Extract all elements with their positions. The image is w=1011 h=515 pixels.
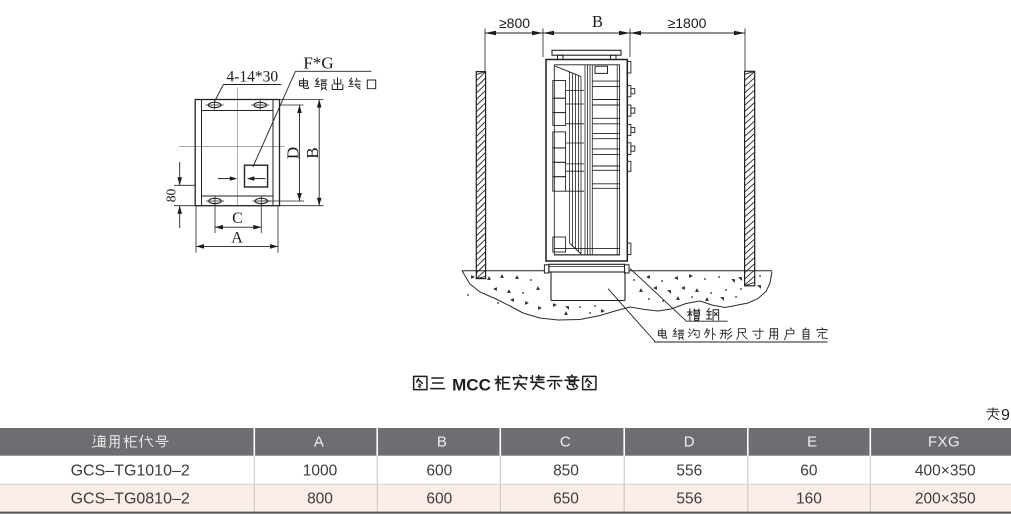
svg-text:B: B [592, 12, 603, 31]
svg-text:E: E [807, 434, 818, 451]
svg-text:60: 60 [800, 463, 818, 480]
svg-text:850: 850 [553, 463, 579, 480]
svg-text:600: 600 [426, 463, 452, 480]
svg-text:650: 650 [553, 491, 579, 508]
svg-text:556: 556 [676, 463, 702, 480]
svg-text:80: 80 [164, 189, 179, 203]
svg-text:1000: 1000 [303, 463, 338, 480]
svg-text:GCS–TG1010–2: GCS–TG1010–2 [71, 463, 190, 480]
svg-text:4-14*30: 4-14*30 [226, 69, 278, 86]
svg-text:FXG: FXG [928, 434, 960, 451]
svg-text:800: 800 [307, 491, 333, 508]
svg-text:C: C [560, 434, 571, 451]
svg-text:556: 556 [676, 491, 702, 508]
svg-text:160: 160 [796, 491, 822, 508]
svg-text:D: D [684, 434, 695, 451]
svg-text:9: 9 [1001, 407, 1010, 424]
svg-text:≥1800: ≥1800 [668, 15, 707, 31]
svg-text:C: C [232, 210, 243, 227]
svg-text:A: A [314, 434, 325, 451]
svg-text:≥800: ≥800 [499, 15, 530, 31]
svg-text:D: D [283, 147, 302, 159]
svg-text:F*G: F*G [303, 54, 333, 73]
svg-text:600: 600 [426, 491, 452, 508]
svg-text:A: A [231, 229, 243, 246]
svg-text:B: B [437, 434, 448, 451]
svg-text:B: B [303, 147, 322, 158]
svg-text:200×350: 200×350 [915, 491, 976, 508]
svg-text:400×350: 400×350 [915, 463, 976, 480]
svg-text:MCC: MCC [452, 375, 491, 394]
svg-text:GCS–TG0810–2: GCS–TG0810–2 [71, 491, 190, 508]
